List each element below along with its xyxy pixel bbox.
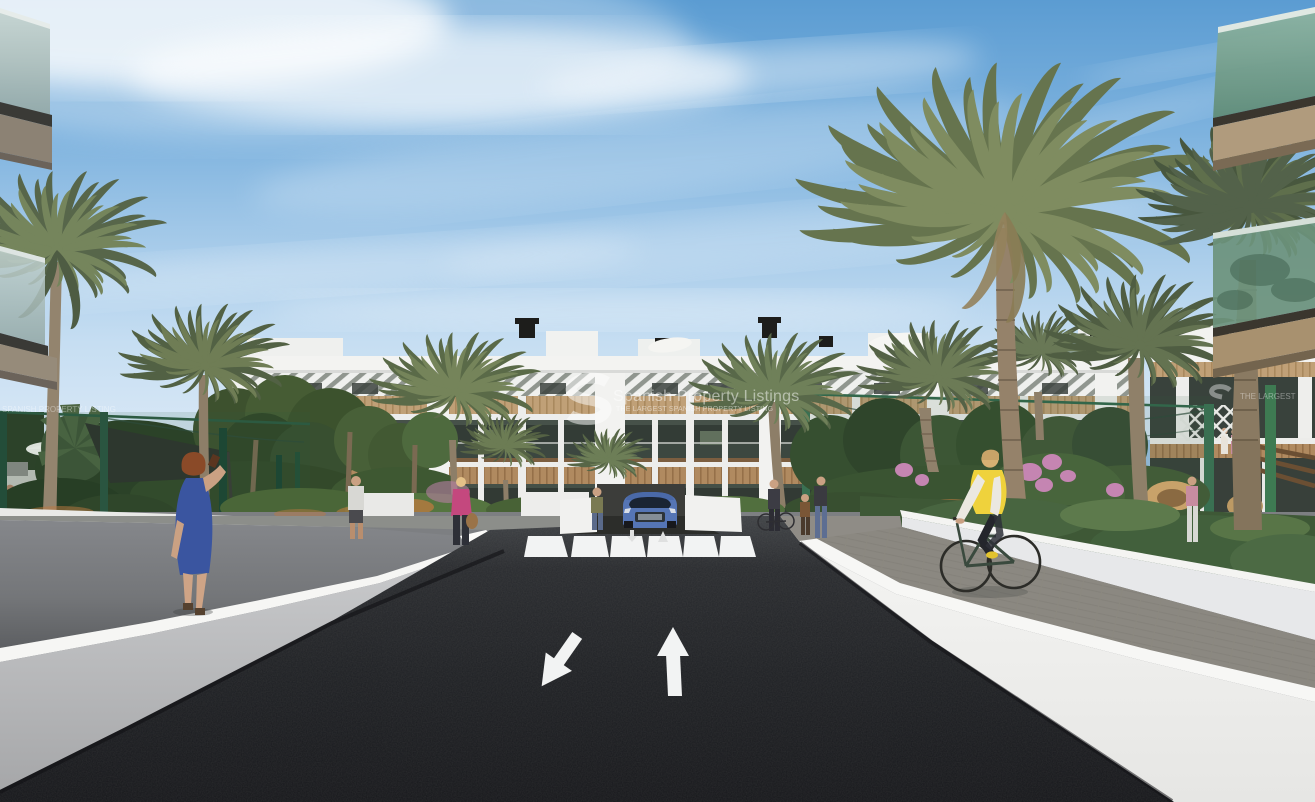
svg-text:THE LARGEST SPANISH PROPERTY L: THE LARGEST SPANISH PROPERTY LISTING [616,406,773,413]
svg-text:SPANISH PROPERTY LISTING: SPANISH PROPERTY LISTING [2,405,116,414]
svg-text:Spanish Property Listings: Spanish Property Listings [613,388,799,405]
svg-text:THE LARGEST: THE LARGEST [1240,392,1296,401]
